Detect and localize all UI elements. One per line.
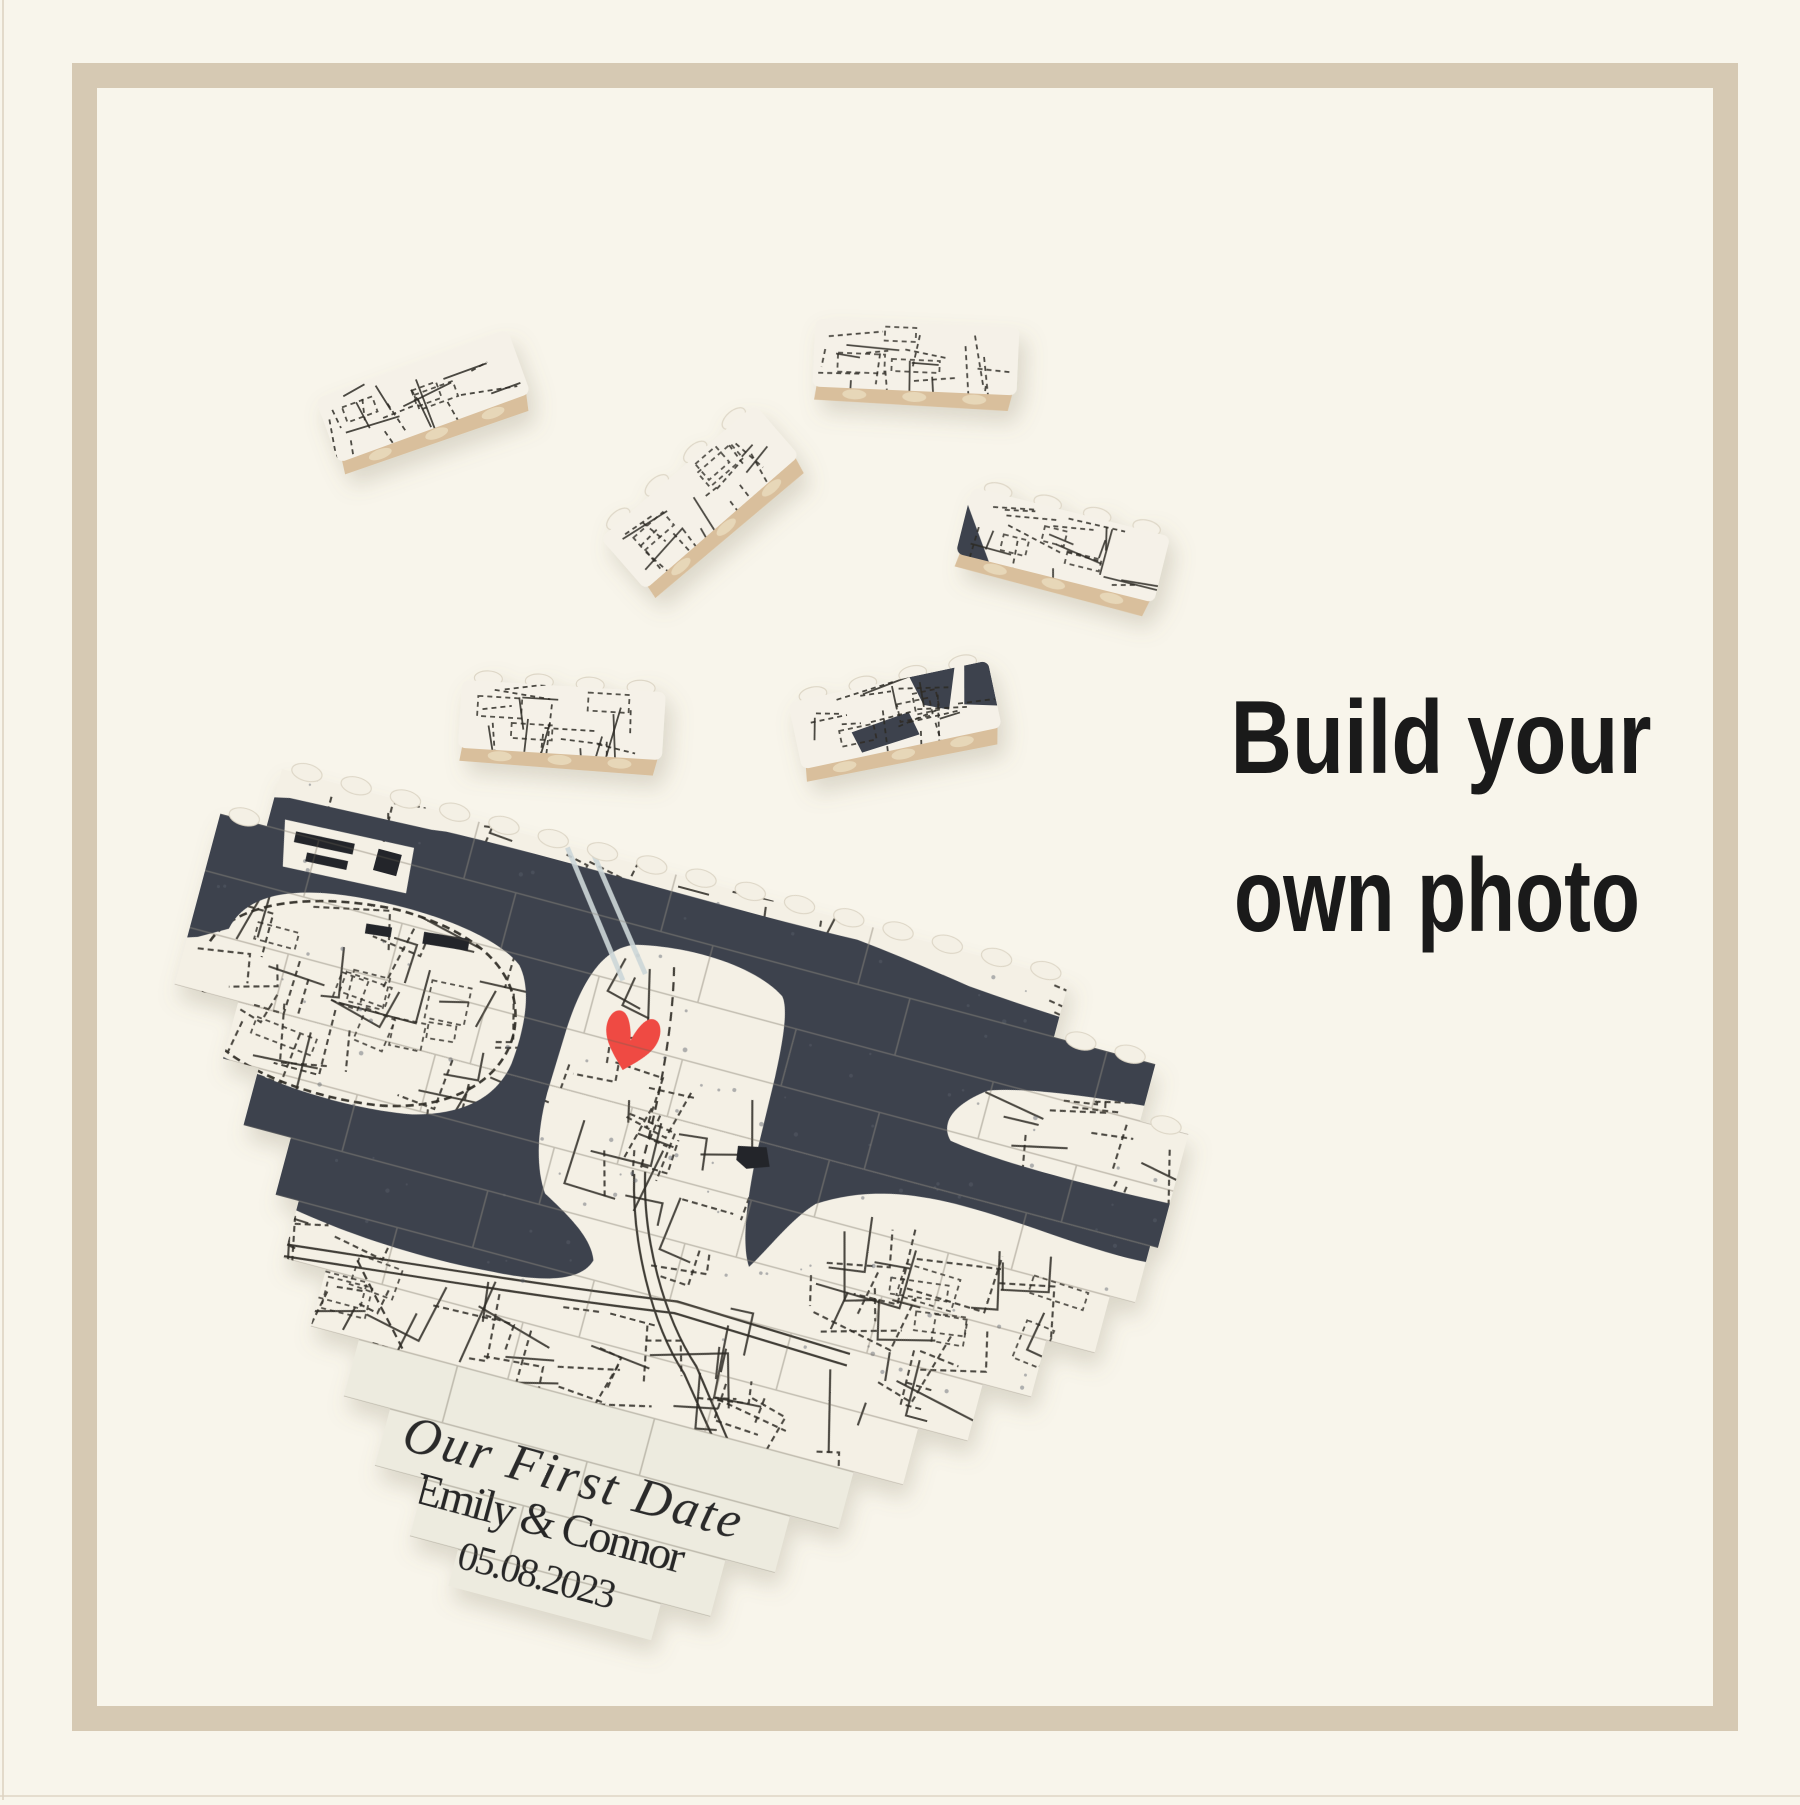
- svg-text:Build your: Build your: [1231, 680, 1652, 796]
- svg-text:own photo: own photo: [1234, 838, 1640, 954]
